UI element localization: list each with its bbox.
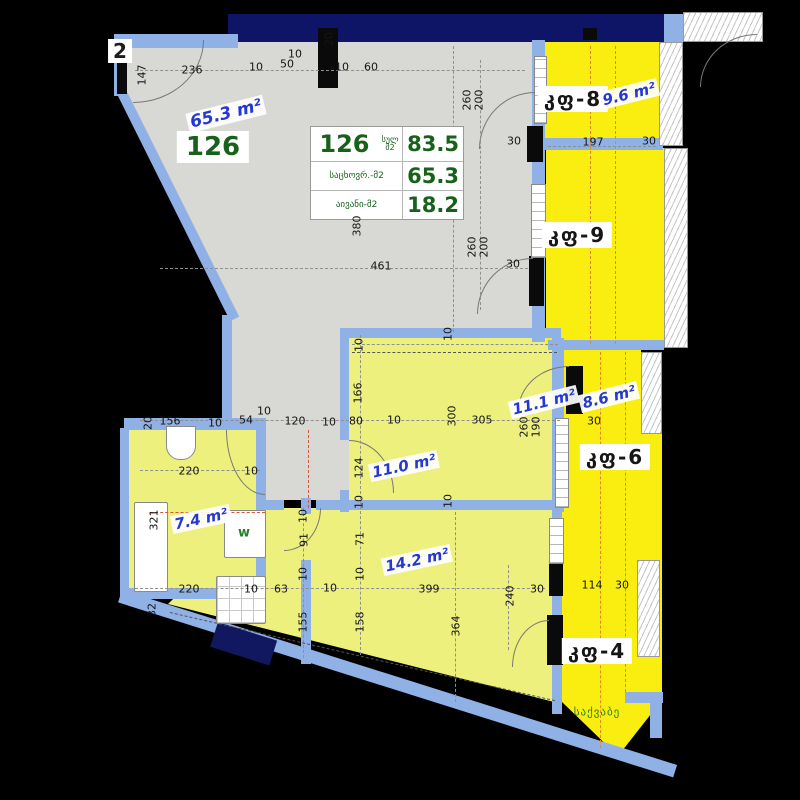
dim-label: 166 [352,383,365,404]
dim-label: 461 [371,260,392,273]
dim-label: 236 [182,64,203,77]
balcony-area-value: 18.2 [402,191,463,219]
apartment-info-table: 126 სულ მ2 83.5 საცხოვრ.-მ2 65.3 აივანი-… [310,126,464,220]
dim-label: 240 [504,586,517,607]
dim-label: 10 [297,567,310,581]
dim-label: 10 [208,417,222,430]
dim-label: 10 [249,61,263,74]
dim-label: 80 [349,415,363,428]
balcony-area-label: აივანი-მ2 [311,200,402,210]
railing-kf8 [659,42,683,146]
dim-label: 10 [353,495,366,509]
dim-label: 71 [354,532,367,546]
balcony-label: კფ-9 [542,222,612,248]
wall-kf4-notch-v [650,692,662,738]
dim-label: 10 [244,465,258,478]
wall-corridor-right-upper [340,328,349,440]
dim-label: 156 [160,415,181,428]
dim-label: 54 [239,414,253,427]
wall-kf9-kf6-divider [548,340,664,350]
dim-label: 30 [530,583,544,596]
dim-label: 155 [297,612,310,633]
dim-label: 200 [478,237,491,258]
dim-label: 60 [364,61,378,74]
dim-label: 197 [583,136,604,149]
dim-line [140,470,260,471]
total-area-value: 83.5 [402,127,463,161]
boiler-label: საქვაბე [574,706,620,719]
table-row: აივანი-მ2 18.2 [311,190,463,219]
living-area-value: 65.3 [402,162,463,190]
dim-label: 10 [288,48,302,61]
wall-left-mid [222,315,232,427]
dim-label: 91 [298,533,311,547]
dim-label: 364 [450,616,463,637]
railing-kf9 [664,148,688,348]
dim-label: 10 [297,509,310,523]
dim-label: 30 [615,579,629,592]
window-bed2-kf4 [549,518,564,564]
dim-label: 124 [353,458,366,479]
neighbor-label: 2 [108,39,132,63]
dim-label: 10 [257,405,271,418]
dim-label: 200 [473,90,486,111]
dim-line [352,344,558,345]
dim-label: 399 [419,583,440,596]
table-row: საცხოვრ.-მ2 65.3 [311,161,463,190]
dim-label: 10 [322,416,336,429]
dim-label: 305 [472,414,493,427]
sink [166,426,196,460]
door-leaf-kf4 [547,615,563,665]
dim-label: 114 [582,579,603,592]
dim-label: 30 [507,135,521,148]
unit-label: 126 [177,131,249,163]
shaft-top-small [583,28,597,40]
dim-label: 32 [146,603,159,617]
dim-label: 10 [387,414,401,427]
table-row: 126 სულ მ2 83.5 [311,127,463,161]
dim-label: 380 [351,216,364,237]
heating-line [308,430,309,508]
wall-top-exterior [228,14,664,42]
dim-label: 30 [642,135,656,148]
balcony-label: კფ-8 [538,86,608,112]
window-bed1-kf6 [555,418,569,508]
dim-label: 10 [244,583,258,596]
wall-bed1-bed2-a [256,500,284,510]
dim-line [455,512,456,702]
total-unit-label: სულ მ2 [378,136,402,152]
railing-kf6 [641,352,662,434]
dim-label: 10 [442,327,455,341]
balcony-label: კფ-4 [562,638,632,664]
dim-line [160,268,528,269]
living-area-label: საცხოვრ.-მ2 [311,171,402,181]
dim-label: 220 [179,583,200,596]
shower-tray [216,576,266,624]
dim-label: 120 [285,415,306,428]
dim-label: 10 [323,582,337,595]
dim-line [508,565,509,650]
dim-label: 10 [354,567,367,581]
dim-label: 321 [148,510,161,531]
wall-bath-left [120,428,129,598]
dim-label: 10 [442,494,455,508]
dim-label: 30 [506,258,520,271]
dim-label: 20 [323,32,336,46]
dim-label: 300 [446,406,459,427]
dim-label: 190 [530,417,543,438]
balcony-label: კფ-6 [580,444,650,470]
wmark-label: w [238,526,250,541]
center-line [600,352,601,748]
dim-label: 30 [587,415,601,428]
dim-label: 63 [274,583,288,596]
wall-black-bed2-right [549,562,563,596]
dim-label: 220 [179,465,200,478]
railing-kf4 [637,560,660,657]
beam-line [352,352,557,353]
dim-label: 158 [354,612,367,633]
floor-plan: 126 სულ მ2 83.5 საცხოვრ.-მ2 65.3 აივანი-… [0,0,800,800]
dim-line [303,508,304,658]
dim-label: 147 [136,65,149,86]
apartment-number: 126 [311,130,378,158]
dim-label: 10 [335,61,349,74]
dim-label: 10 [353,338,366,352]
dim-label: 20 [142,416,155,430]
